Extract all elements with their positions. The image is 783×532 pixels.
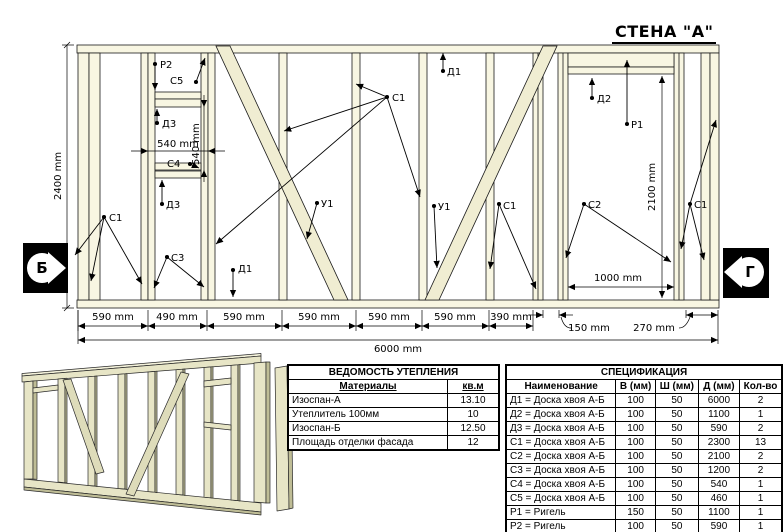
column-header: Материалы — [288, 380, 448, 394]
spec-table: СПЕЦИФИКАЦИЯ Наименование В (мм) Ш (мм) … — [505, 364, 783, 532]
stud — [148, 53, 155, 300]
qty-cell: 1 — [740, 506, 782, 520]
column-header: Кол-во — [740, 380, 782, 394]
w-cell: 50 — [655, 520, 698, 532]
w-cell: 50 — [655, 436, 698, 450]
stud — [78, 53, 89, 300]
annotation-label: С1 — [694, 200, 707, 211]
insulation-table-title: ВЕДОМОСТЬ УТЕПЛЕНИЯ — [288, 365, 499, 380]
diagonal-braces — [216, 46, 557, 300]
dimension-label: 590 mm — [223, 312, 265, 323]
table-row: Д2 = Доска хвоя А-Б 100 50 1100 1 — [506, 408, 782, 422]
w-cell: 50 — [655, 422, 698, 436]
annotation-label: Р2 — [160, 60, 172, 71]
window-sill — [155, 171, 201, 178]
window-blocking — [155, 99, 201, 107]
table-row: Площадь отделки фасада 12 — [288, 436, 499, 451]
annotation-label: У1 — [438, 202, 450, 213]
h-cell: 100 — [616, 408, 656, 422]
w-cell: 50 — [655, 506, 698, 520]
column-header: кв.м — [448, 380, 500, 394]
area-cell: 12.50 — [448, 422, 500, 436]
dimension-label: 390 mm — [490, 312, 532, 323]
section-marker-right-label: Г — [745, 263, 755, 281]
item-cell: Р1 = Ригель — [506, 506, 616, 520]
door-header — [568, 53, 674, 67]
section-marker-left-label: Б — [36, 259, 47, 277]
annotation-label: Д1 — [238, 264, 252, 275]
section-marker-left: Б — [23, 243, 68, 293]
h-cell: 100 — [616, 436, 656, 450]
l-cell: 590 — [698, 520, 739, 532]
l-cell: 460 — [698, 492, 739, 506]
dimensions — [62, 42, 718, 344]
table-row: С4 = Доска хвоя А-Б 100 50 540 1 — [506, 478, 782, 492]
stud-3d-side — [266, 362, 270, 503]
h-cell: 100 — [616, 520, 656, 532]
table-row: Изоспан-А 13.10 — [288, 394, 499, 408]
stud-3d — [24, 381, 33, 479]
stud — [352, 53, 360, 300]
dimension-label: 590 mm — [92, 312, 134, 323]
table-row: Утеплитель 100мм 10 — [288, 408, 499, 422]
bottom-plate — [77, 300, 719, 308]
dimension-label: 590 mm — [368, 312, 410, 323]
qty-cell: 1 — [740, 492, 782, 506]
annotation-label: Д3 — [166, 200, 180, 211]
table-row: Изоспан-Б 12.50 — [288, 422, 499, 436]
material-cell: Утеплитель 100мм — [288, 408, 448, 422]
stud — [701, 53, 710, 300]
l-cell: 2300 — [698, 436, 739, 450]
h-cell: 100 — [616, 422, 656, 436]
w-cell: 50 — [655, 394, 698, 408]
table-row: Д3 = Доска хвоя А-Б 100 50 590 2 — [506, 422, 782, 436]
dimension-label: 540 mm — [191, 123, 202, 165]
l-cell: 540 — [698, 478, 739, 492]
qty-cell: 1 — [740, 520, 782, 532]
l-cell: 1100 — [698, 408, 739, 422]
annotation-label: Д3 — [162, 119, 176, 130]
annotation-label: С5 — [170, 76, 183, 87]
stud-3d — [254, 362, 266, 503]
dimension-label: 150 mm — [568, 323, 610, 334]
item-cell: С1 = Доска хвоя А-Б — [506, 436, 616, 450]
w-cell: 50 — [655, 478, 698, 492]
dimension-label: 270 mm — [633, 323, 675, 334]
table-row: С1 = Доска хвоя А-Б 100 50 2300 13 — [506, 436, 782, 450]
annotation-label: Д1 — [447, 67, 461, 78]
table-row: Р2 = Ригель 100 50 590 1 — [506, 520, 782, 532]
stud — [419, 53, 427, 300]
area-cell: 10 — [448, 408, 500, 422]
stud — [141, 53, 148, 300]
qty-cell: 2 — [740, 422, 782, 436]
item-cell: Д3 = Доска хвоя А-Б — [506, 422, 616, 436]
top-rail — [22, 356, 261, 382]
l-cell: 590 — [698, 422, 739, 436]
stud-3d-side — [65, 378, 67, 483]
dimension-label: 6000 mm — [374, 344, 422, 355]
dimension-label: 590 mm — [298, 312, 340, 323]
table-row: С5 = Доска хвоя А-Б 100 50 460 1 — [506, 492, 782, 506]
table-row: Р1 = Ригель 150 50 1100 1 — [506, 506, 782, 520]
item-cell: С2 = Доска хвоя А-Б — [506, 450, 616, 464]
perspective-view — [8, 352, 303, 532]
stud — [201, 53, 208, 300]
h-cell: 100 — [616, 492, 656, 506]
annotation-label: С4 — [167, 159, 180, 170]
l-cell: 1200 — [698, 464, 739, 478]
item-cell: С5 = Доска хвоя А-Б — [506, 492, 616, 506]
stud-3d-side — [125, 374, 127, 490]
h-cell: 100 — [616, 394, 656, 408]
l-cell: 6000 — [698, 394, 739, 408]
wall-frame-drawing: Р2 С5 Д3 С4 Д3 С1 С3 Д1 У1 С1 Д1 У1 С1 С… — [0, 0, 783, 360]
annotation-label: Д2 — [597, 94, 611, 105]
l-cell: 1100 — [698, 506, 739, 520]
h-cell: 100 — [616, 450, 656, 464]
qty-cell: 2 — [740, 450, 782, 464]
qty-cell: 2 — [740, 464, 782, 478]
annotation-label: У1 — [321, 199, 333, 210]
item-cell: Д1 = Доска хвоя А-Б — [506, 394, 616, 408]
annotation-label: С1 — [392, 93, 405, 104]
item-cell: С3 = Доска хвоя А-Б — [506, 464, 616, 478]
section-marker-right: Г — [723, 248, 769, 298]
material-cell: Изоспан-Б — [288, 422, 448, 436]
column-header: Наименование — [506, 380, 616, 394]
annotation-label: С3 — [171, 253, 184, 264]
dimension-label: 2400 mm — [53, 152, 64, 200]
bottom-rail — [24, 479, 261, 512]
annotation-label: С1 — [109, 213, 122, 224]
qty-cell: 2 — [740, 394, 782, 408]
window-blocking — [155, 92, 201, 99]
area-cell: 13.10 — [448, 394, 500, 408]
w-cell: 50 — [655, 492, 698, 506]
area-cell: 12 — [448, 436, 500, 451]
door-header-board — [568, 67, 674, 74]
spec-table-title: СПЕЦИФИКАЦИЯ — [506, 365, 782, 380]
item-cell: Р2 = Ригель — [506, 520, 616, 532]
brace-3d — [63, 379, 104, 474]
item-cell: Д2 = Доска хвоя А-Б — [506, 408, 616, 422]
table-row: С2 = Доска хвоя А-Б 100 50 2100 2 — [506, 450, 782, 464]
w-cell: 50 — [655, 408, 698, 422]
page: СТЕНА "А" — [0, 0, 783, 532]
h-cell: 100 — [616, 478, 656, 492]
dimension-label: 490 mm — [156, 312, 198, 323]
annotation-label: С1 — [503, 201, 516, 212]
dimension-label: 2100 mm — [647, 163, 658, 211]
stud-3d-side — [238, 365, 240, 501]
column-header: Ш (мм) — [655, 380, 698, 394]
stud — [208, 53, 215, 300]
qty-cell: 13 — [740, 436, 782, 450]
dimension-label: 590 mm — [434, 312, 476, 323]
h-cell: 100 — [616, 464, 656, 478]
stud — [710, 53, 719, 300]
item-cell: С4 = Доска хвоя А-Б — [506, 478, 616, 492]
stud-3d — [58, 378, 65, 482]
stud-3d-side — [33, 381, 37, 480]
qty-cell: 1 — [740, 408, 782, 422]
qty-cell: 1 — [740, 478, 782, 492]
stud-3d-side — [183, 369, 185, 495]
insulation-table: ВЕДОМОСТЬ УТЕПЛЕНИЯ Материалы кв.м Изосп… — [287, 364, 500, 451]
l-cell: 2100 — [698, 450, 739, 464]
annotation-label: С2 — [588, 200, 601, 211]
h-cell: 150 — [616, 506, 656, 520]
stud-3d — [118, 374, 125, 489]
top-plate — [77, 45, 719, 53]
stud-3d — [231, 365, 238, 501]
material-cell: Площадь отделки фасада — [288, 436, 448, 451]
annotation-label: Р1 — [631, 120, 643, 131]
column-header: Д (мм) — [698, 380, 739, 394]
material-cell: Изоспан-А — [288, 394, 448, 408]
column-header: В (мм) — [616, 380, 656, 394]
w-cell: 50 — [655, 450, 698, 464]
table-row: Д1 = Доска хвоя А-Б 100 50 6000 2 — [506, 394, 782, 408]
w-cell: 50 — [655, 464, 698, 478]
table-row: С3 = Доска хвоя А-Б 100 50 1200 2 — [506, 464, 782, 478]
dimension-label: 1000 mm — [594, 273, 642, 284]
